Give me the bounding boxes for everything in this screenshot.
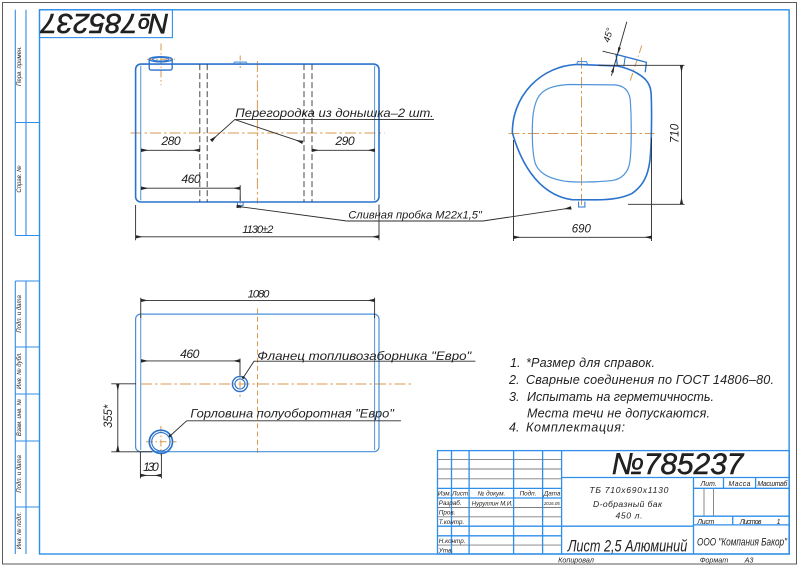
svg-text:Изм.: Изм. <box>438 490 451 497</box>
svg-text:1080: 1080 <box>248 289 270 301</box>
svg-text:Лит.: Лит. <box>700 481 717 488</box>
svg-text:Испытать на герметичность.: Испытать на герметичность. <box>527 390 714 404</box>
svg-text:4.: 4. <box>509 421 520 435</box>
svg-text:130: 130 <box>143 460 159 474</box>
svg-text:№785237: №785237 <box>40 8 169 39</box>
svg-text:Комплектация:: Комплектация: <box>526 421 625 435</box>
svg-text:Фланец топливозаборника "Евро": Фланец топливозаборника "Евро" <box>257 349 472 363</box>
svg-text:3.: 3. <box>509 390 520 404</box>
svg-text:Справ. №: Справ. № <box>16 165 23 193</box>
svg-text:45°: 45° <box>602 27 617 44</box>
svg-text:710: 710 <box>668 124 682 143</box>
svg-text:450 л.: 450 л. <box>616 511 643 521</box>
svg-text:280: 280 <box>160 134 180 148</box>
svg-text:ООО "Компания Бакор": ООО "Компания Бакор" <box>697 536 788 548</box>
svg-text:1.: 1. <box>510 356 521 370</box>
svg-text:Пров.: Пров. <box>439 509 456 516</box>
svg-text:Подп. и дата: Подп. и дата <box>17 455 23 493</box>
svg-text:355*: 355* <box>101 404 115 428</box>
svg-text:Масштаб: Масштаб <box>757 480 788 488</box>
svg-text:2.: 2. <box>508 373 520 387</box>
svg-text:Лист: Лист <box>696 519 714 526</box>
svg-text:Утв.: Утв. <box>438 547 453 554</box>
svg-text:460: 460 <box>180 347 200 361</box>
svg-text:2016.05: 2016.05 <box>543 501 560 506</box>
svg-text:Т.контр.: Т.контр. <box>439 519 464 526</box>
svg-text:Лист: Лист <box>451 490 468 497</box>
svg-text:Взам. инв. №: Взам. инв. № <box>16 398 23 436</box>
svg-text:Разраб.: Разраб. <box>439 499 462 507</box>
svg-text:Инв. № дубл.: Инв. № дубл. <box>16 352 23 389</box>
svg-text:460: 460 <box>181 172 201 186</box>
svg-text:Перегородка из донышка–2 шт.: Перегородка из донышка–2 шт. <box>235 106 433 120</box>
svg-text:Формат: Формат <box>700 556 729 565</box>
svg-text:ТБ 710х690х1130: ТБ 710х690х1130 <box>589 485 668 495</box>
svg-text:*Размер для справок.: *Размер для справок. <box>526 356 655 370</box>
svg-text:Листов: Листов <box>739 519 762 526</box>
svg-text:Копировал: Копировал <box>558 556 594 565</box>
svg-text:№785237: №785237 <box>612 448 745 481</box>
svg-text:690: 690 <box>572 222 591 236</box>
svg-text:Перв. примен.: Перв. примен. <box>17 46 23 86</box>
svg-text:D-образный бак: D-образный бак <box>593 499 663 509</box>
svg-text:290: 290 <box>334 134 354 148</box>
svg-text:Сливная пробка М22х1,5": Сливная пробка М22х1,5" <box>348 210 482 222</box>
svg-text:№ докум.: № докум. <box>478 489 506 497</box>
svg-text:Н.контр.: Н.контр. <box>439 538 466 545</box>
svg-text:А3: А3 <box>744 556 754 565</box>
svg-text:Инв. № подл.: Инв. № подл. <box>16 512 23 549</box>
svg-text:Подп.: Подп. <box>520 489 537 497</box>
svg-text:Места течи не допускаются.: Места течи не допускаются. <box>527 407 710 421</box>
svg-text:1: 1 <box>777 519 781 526</box>
svg-text:1130±2: 1130±2 <box>242 224 274 236</box>
svg-text:Дата: Дата <box>543 490 561 497</box>
svg-text:Горловина полуоборотная "Евро": Горловина полуоборотная "Евро" <box>190 406 394 420</box>
svg-text:Лист 2,5 Алюминий: Лист 2,5 Алюминий <box>567 537 687 555</box>
svg-text:Масса: Масса <box>729 481 751 488</box>
svg-text:Нуруллин М.И.: Нуруллин М.И. <box>472 501 513 508</box>
svg-text:Сварные соединения по ГОСТ 148: Сварные соединения по ГОСТ 14806–80. <box>526 373 774 387</box>
svg-text:Подп. и дата: Подп. и дата <box>17 295 23 333</box>
